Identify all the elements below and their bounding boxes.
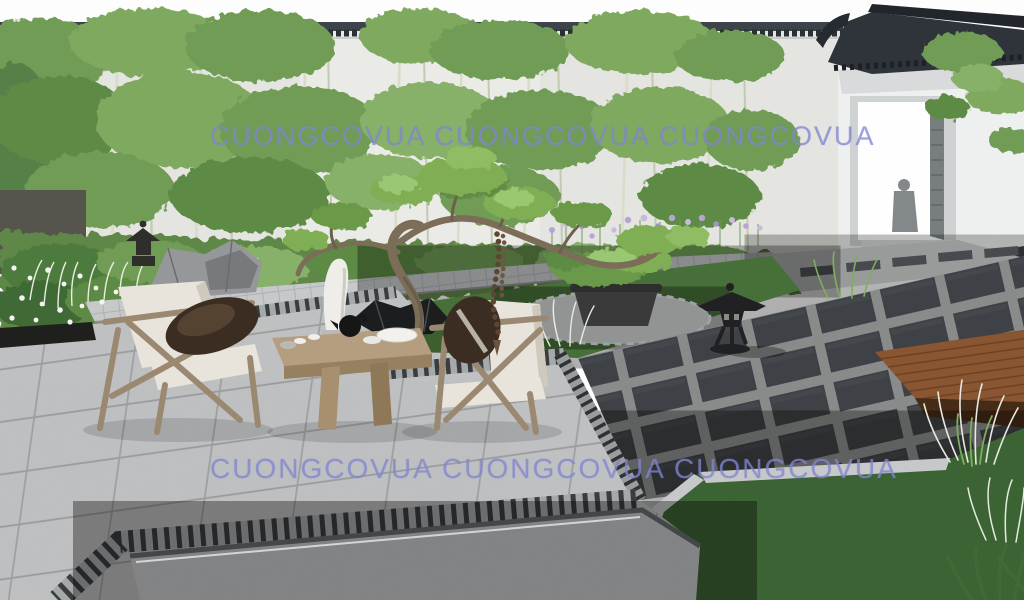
garden-render-image: CUONGCOVUA CUONGCOVUA CUONGCOVUA CUONGCO… <box>0 0 1024 600</box>
garden-render-svg <box>0 0 1024 600</box>
